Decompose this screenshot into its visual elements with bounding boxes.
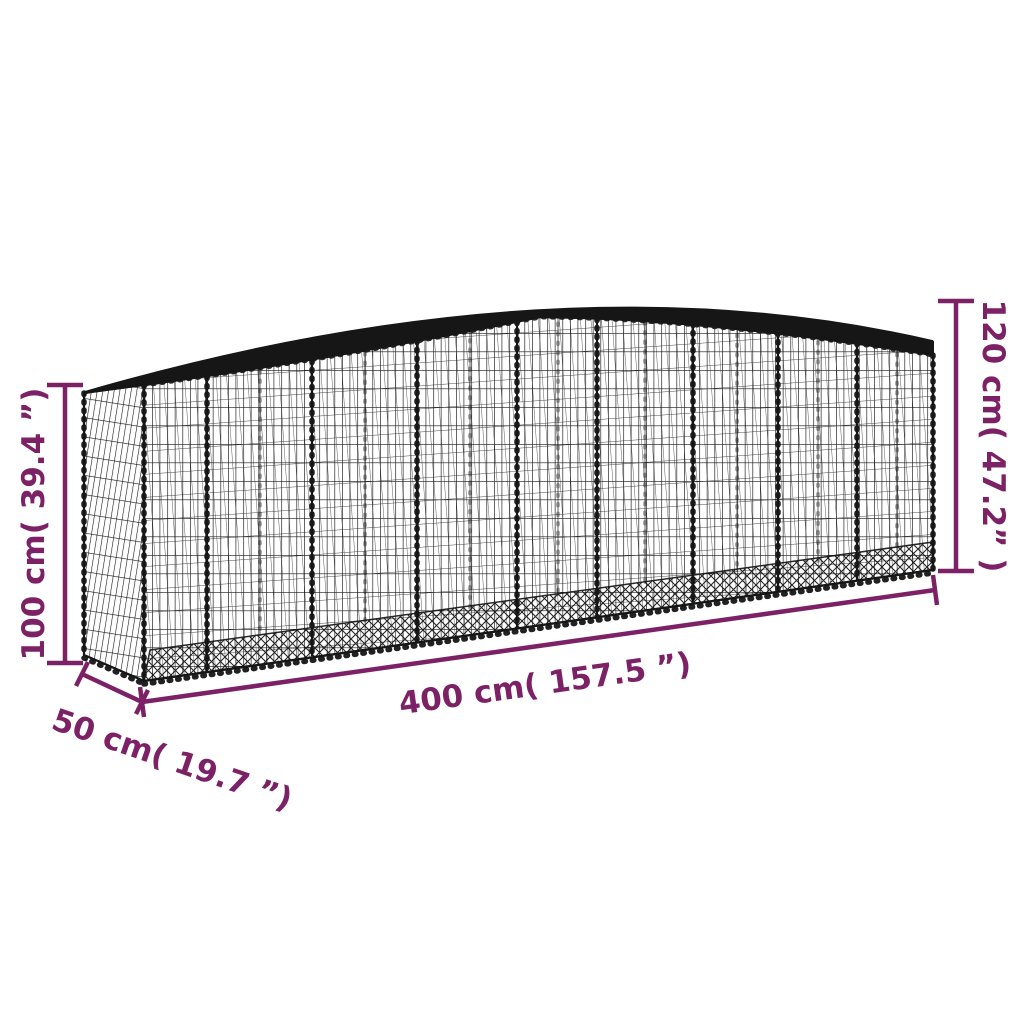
dimension-width-label: 400 cm( 157.5 ”): [397, 646, 694, 723]
dimension-depth-label: 50 cm( 19.7 ”): [47, 702, 296, 818]
dimension-height-left-label: 100 cm( 39.4 ”): [16, 388, 52, 661]
diagram-canvas: 100 cm( 39.4 ”) 120 cm( 47.2” ) 400 cm( …: [0, 0, 1024, 1024]
basket-left-end-mesh: [84, 385, 144, 681]
dimension-height-left: 100 cm( 39.4 ”): [16, 385, 83, 663]
gabion-basket-illustration: [84, 308, 933, 684]
product-dimension-diagram: 100 cm( 39.4 ”) 120 cm( 47.2” ) 400 cm( …: [0, 0, 1024, 1024]
dimension-height-right-label: 120 cm( 47.2” ): [975, 300, 1011, 573]
dimension-height-right: 120 cm( 47.2” ): [938, 300, 1011, 573]
